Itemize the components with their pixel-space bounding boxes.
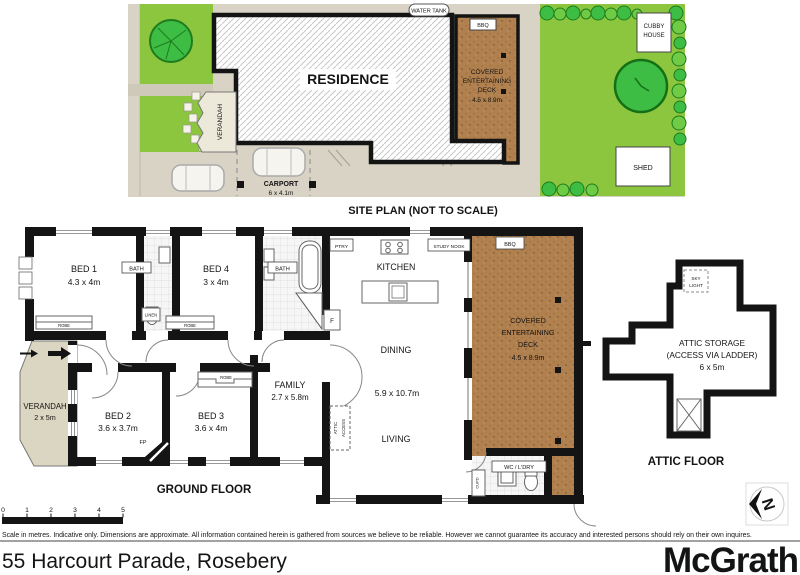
bath1-label: BATH — [129, 267, 144, 273]
site-deck-dims: 4.5 x 8.9m — [472, 97, 502, 104]
attic-floor-title: ATTIC FLOOR — [648, 456, 725, 468]
car-icon — [172, 165, 224, 191]
attic-storage-label: ATTIC STORAGE — [679, 338, 746, 348]
cubby-label-1: CUBBY — [644, 24, 665, 30]
deck-post — [555, 438, 561, 444]
car-icon — [253, 148, 305, 176]
bed2-label: BED 2 — [105, 411, 131, 421]
scale-ticks — [3, 514, 123, 518]
disclaimer-text: Scale in metres. Indicative only. Dimens… — [2, 532, 752, 539]
linen-label: LINEN — [145, 313, 157, 318]
dining-label: DINING — [381, 345, 412, 355]
gf-verandah-dims: 2 x 5m — [34, 413, 56, 422]
scale-tick-4: 4 — [97, 507, 101, 514]
scale-tick-3: 3 — [73, 507, 77, 514]
pantry-label: PTRY — [335, 244, 349, 250]
site-bbq-label: BBQ — [477, 23, 488, 29]
attic-storage-dims: 6 x 5m — [700, 362, 725, 372]
carport-post-right — [309, 181, 316, 188]
open-plan-dims: 5.9 x 10.7m — [375, 388, 419, 398]
fp-label: FP — [140, 440, 147, 446]
water-tank: WATER TANK — [409, 4, 449, 16]
skylight-label-2: LIGHT — [689, 283, 703, 288]
address-text: 55 Harcourt Parade, Rosebery — [2, 550, 287, 573]
carport-label: CARPORT — [264, 181, 299, 188]
attic-ladder-hatch — [677, 399, 701, 431]
attic-plan: SKY LIGHT ATTIC STORAGE (ACCESS VIA LADD… — [606, 263, 773, 468]
back-tree-icon — [615, 60, 667, 112]
site-deck-label-2: ENTERTAINING — [463, 78, 511, 85]
scale-tick-0: 0 — [1, 507, 5, 514]
gf-deck-label-2: ENTERTAINING — [502, 328, 555, 337]
robe-label: ROBE — [184, 323, 196, 328]
attic-access-label-2: ACCESS — [341, 419, 346, 437]
shed: SHED — [616, 147, 670, 186]
bath2-label: BATH — [275, 267, 290, 273]
scale-tick-2: 2 — [49, 507, 53, 514]
gf-deck-label-3: DECK — [518, 340, 538, 349]
deck-post — [501, 53, 506, 58]
scale-bar: 0 1 2 3 4 5 — [1, 507, 125, 524]
bed1-label: BED 1 — [71, 264, 97, 274]
ground-floor-plan: BED 1 4.3 x 4m BATH BED 4 3 x 4m BATH PT… — [19, 227, 596, 526]
ground-floor-title: GROUND FLOOR — [157, 484, 252, 496]
bed3-dims: 3.6 x 4m — [195, 423, 228, 433]
site-deck-label-3: DECK — [478, 87, 497, 94]
wc-ldry-label: WC / L'DRY — [504, 465, 534, 471]
bed3-label: BED 3 — [198, 411, 224, 421]
bed4-label: BED 4 — [203, 264, 229, 274]
kitchen-label: KITCHEN — [377, 262, 416, 272]
deck-post — [501, 89, 506, 94]
front-tree-icon — [150, 20, 192, 62]
carport-post-left — [237, 181, 244, 188]
carport-dims: 6 x 4.1m — [269, 190, 294, 197]
deck-post — [555, 297, 561, 303]
north-compass-icon: N — [746, 483, 788, 525]
scale-tick-1: 1 — [25, 507, 29, 514]
gf-bbq-label: BBQ — [504, 242, 515, 248]
site-verandah-label: VERANDAH — [217, 104, 224, 140]
deck-post — [555, 367, 561, 373]
scale-bar-rule — [2, 517, 123, 524]
residence-label: RESIDENCE — [307, 71, 389, 87]
gf-deck-label-1: COVERED — [510, 316, 546, 325]
floorplan-page: CUBBY HOUSE SHED RESIDENCE — [0, 0, 800, 575]
deck-marker — [583, 341, 591, 346]
cubby-label-2: HOUSE — [643, 33, 664, 39]
skylight — [684, 270, 708, 292]
gf-deck-dims: 4.5 x 8.9m — [512, 355, 545, 362]
family-dims: 2.7 x 5.8m — [271, 393, 309, 402]
floorplan-image: CUBBY HOUSE SHED RESIDENCE — [0, 0, 800, 575]
brand-logo: McGrath — [663, 541, 798, 575]
site-deck-label-1: COVERED — [471, 69, 504, 76]
fridge-label: F — [330, 318, 334, 325]
cupd-label: CUPD — [475, 477, 480, 488]
site-plan-title: SITE PLAN (NOT TO SCALE) — [348, 205, 498, 217]
study-nook-label: STUDY NOOK — [434, 244, 466, 249]
living-label: LIVING — [382, 434, 411, 444]
site-plan: CUBBY HOUSE SHED RESIDENCE — [128, 4, 686, 217]
water-tank-label: WATER TANK — [411, 9, 447, 15]
scale-tick-5: 5 — [121, 507, 125, 514]
bed4-dims: 3 x 4m — [203, 277, 229, 287]
family-label: FAMILY — [275, 380, 306, 390]
bed1-dims: 4.3 x 4m — [68, 277, 101, 287]
attic-storage-access: (ACCESS VIA LADDER) — [667, 350, 758, 360]
cubby-house: CUBBY HOUSE — [637, 13, 671, 52]
attic-access-label-1: ATTIC — [333, 422, 338, 434]
skylight-label-1: SKY — [691, 276, 700, 281]
robe-label: ROBE — [58, 323, 70, 328]
gf-verandah-label: VERANDAH — [23, 402, 66, 411]
bed2-dims: 3.6 x 3.7m — [98, 423, 138, 433]
site-bbq: BBQ — [470, 19, 496, 30]
shed-label: SHED — [633, 165, 652, 172]
robe-label: ROBE — [220, 375, 232, 380]
